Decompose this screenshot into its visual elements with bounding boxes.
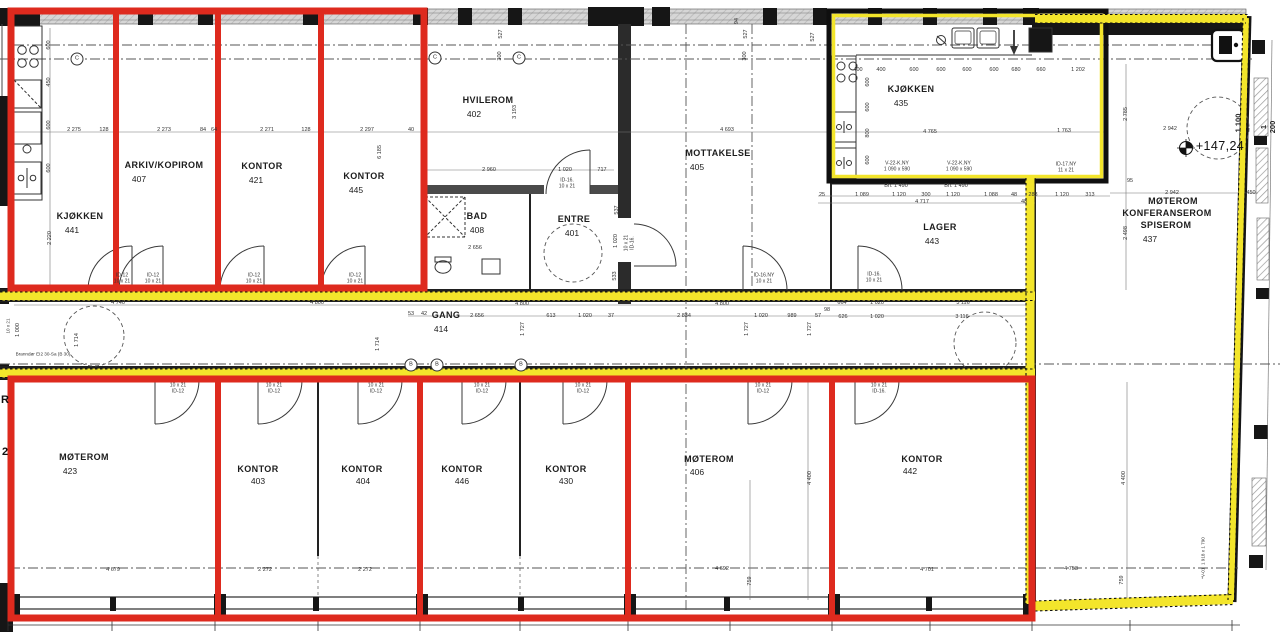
- benchmark-symbol: [1177, 139, 1195, 157]
- kitchen-435-fixtures: [832, 28, 1052, 178]
- refrigerator-icon: [1212, 30, 1244, 61]
- bathroom-fixtures: [425, 197, 500, 274]
- red-highlight: [11, 11, 1032, 618]
- exterior-side-walls: [0, 16, 1272, 632]
- interior-walls: [114, 24, 1035, 606]
- turning-circles: [64, 97, 1249, 374]
- wall-entre-mottakelse: [618, 24, 631, 218]
- kitchen-441-fixtures: [13, 26, 42, 200]
- door-opening-hvilerom: [544, 185, 590, 194]
- kitchen-435-highlight-box: [829, 11, 1106, 181]
- floor-plan-canvas: KJØKKEN441ARKIV/KOPIROM407KONTOR421KONTO…: [0, 0, 1280, 632]
- floor-plan-drawing: [0, 0, 1280, 632]
- centerlines: [0, 24, 1280, 610]
- dimension-lines: [14, 28, 1258, 600]
